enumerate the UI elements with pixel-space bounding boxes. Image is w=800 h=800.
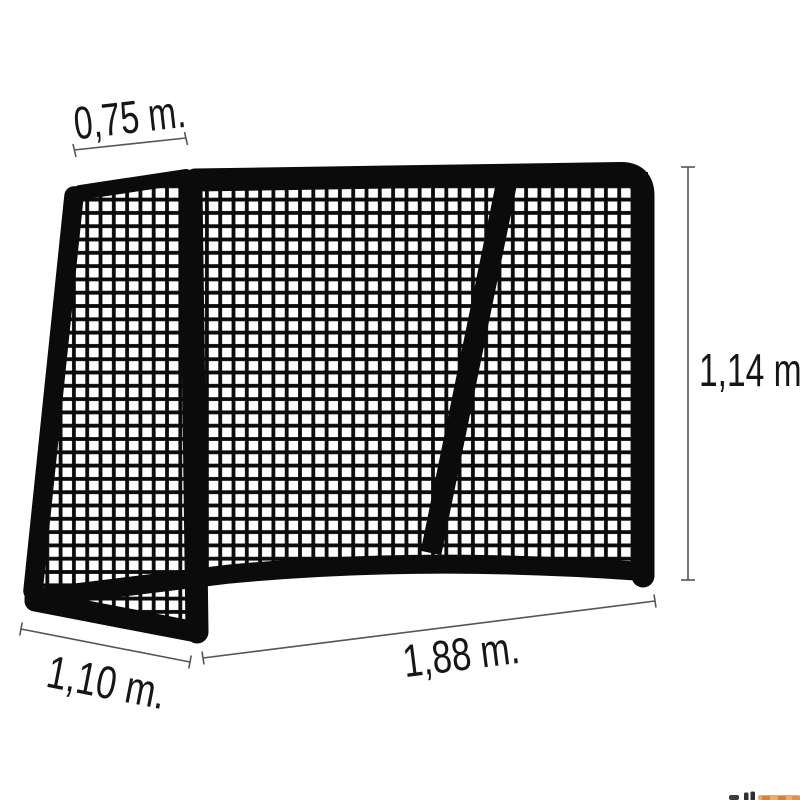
svg-text:1,14 m.: 1,14 m. [699, 344, 800, 396]
